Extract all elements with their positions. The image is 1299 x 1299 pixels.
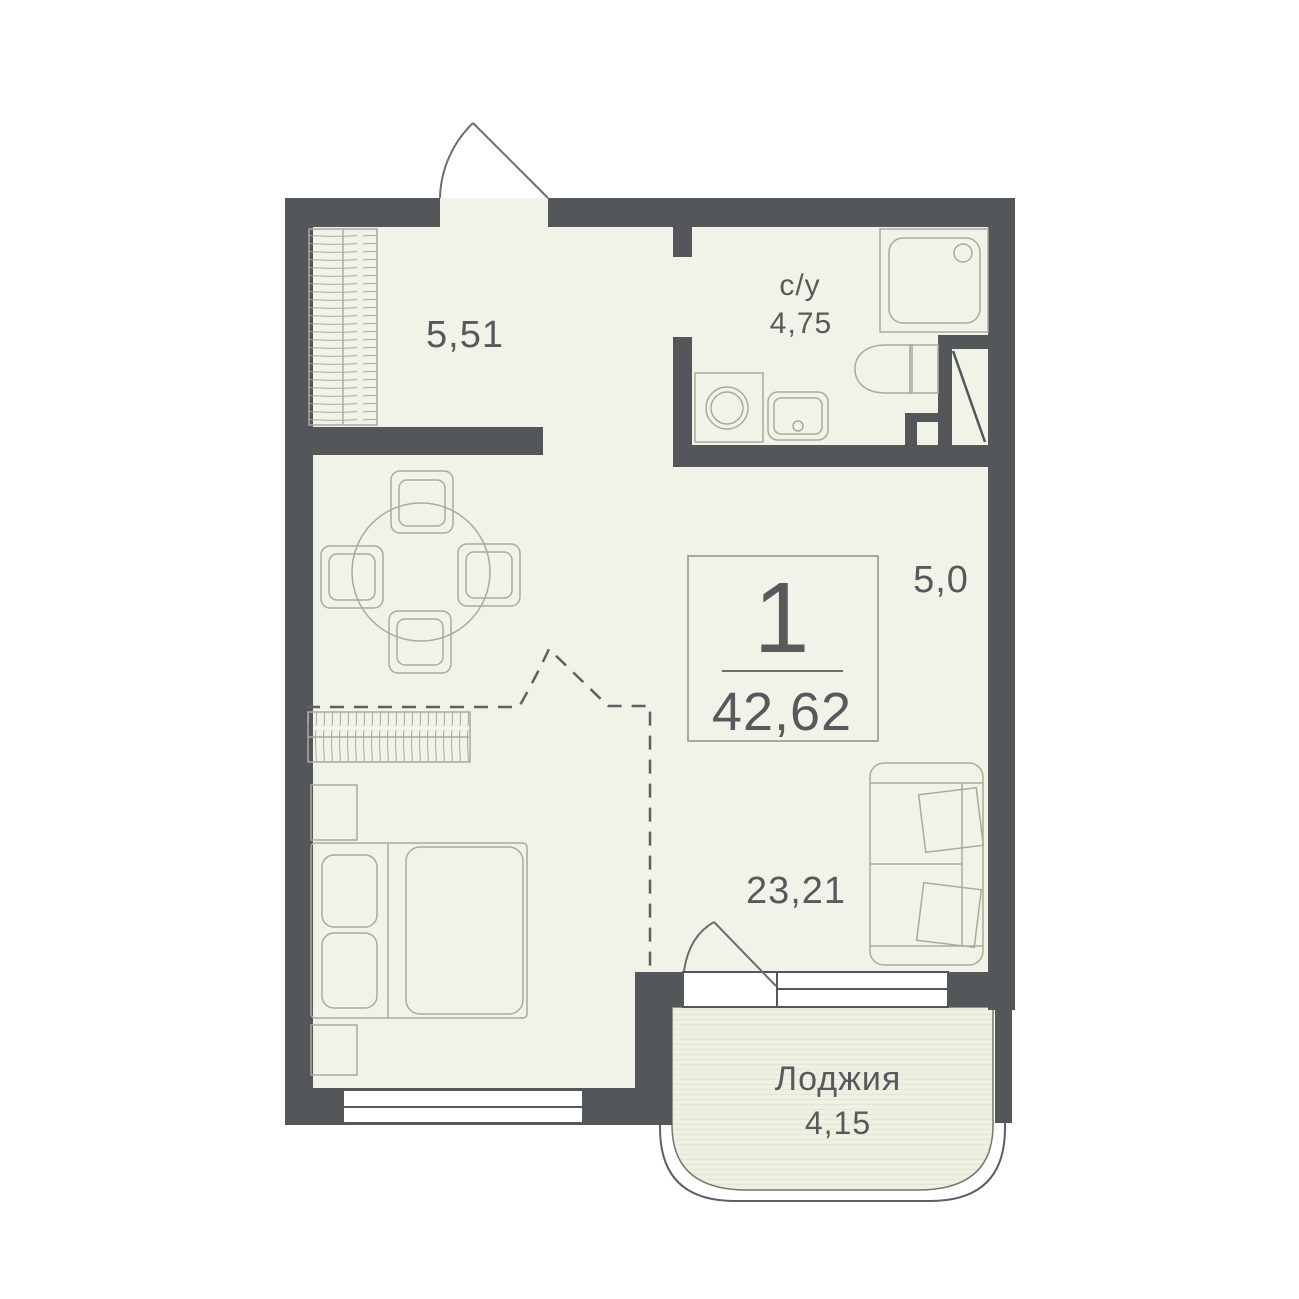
floor-plan: 1 42,62 5,51 с/у 4,75 5,0 23,21 Лоджия 4… (0, 0, 1299, 1299)
bathroom-area-label: 4,75 (770, 307, 832, 340)
wall-bathroom-bottom (673, 445, 1015, 467)
loggia-name-label: Лоджия (775, 1060, 901, 1098)
kitchen-area-label: 5,0 (913, 559, 969, 601)
wall-balcony-left (635, 972, 683, 1007)
wall-right (988, 198, 1015, 1010)
dresser-icon (308, 712, 470, 762)
wall-top-right (548, 198, 1015, 227)
wall-bathroom-left-stub (673, 227, 692, 257)
wall-shaft-left (938, 335, 952, 467)
floor-plan-canvas: 1 42,62 5,51 с/у 4,75 5,0 23,21 Лоджия 4… (0, 0, 1299, 1299)
loggia-floor (672, 1007, 993, 1190)
unit-total-area: 42,62 (712, 682, 852, 742)
living-area-label: 23,21 (746, 870, 846, 912)
balcony-window (777, 972, 948, 1007)
wall-shaft-top (938, 335, 988, 349)
bathroom-name-label: с/у (779, 269, 820, 302)
entry-opening (440, 198, 548, 227)
hallway-area-label: 5,51 (426, 314, 504, 356)
unit-rooms-count: 1 (754, 562, 811, 674)
wall-balcony-right (948, 972, 1015, 1007)
wall-right-loggia (995, 1007, 1012, 1123)
wall-shaft-stub-horizontal (905, 413, 938, 422)
balcony-door-panel (683, 972, 777, 1007)
bedroom-window (343, 1090, 583, 1123)
loggia-area-label: 4,15 (805, 1105, 871, 1141)
wardrobe-icon (309, 229, 377, 425)
loggia (660, 1007, 1005, 1201)
wall-hallway-bottom (285, 427, 543, 455)
entry-door-swing-icon (440, 123, 548, 198)
